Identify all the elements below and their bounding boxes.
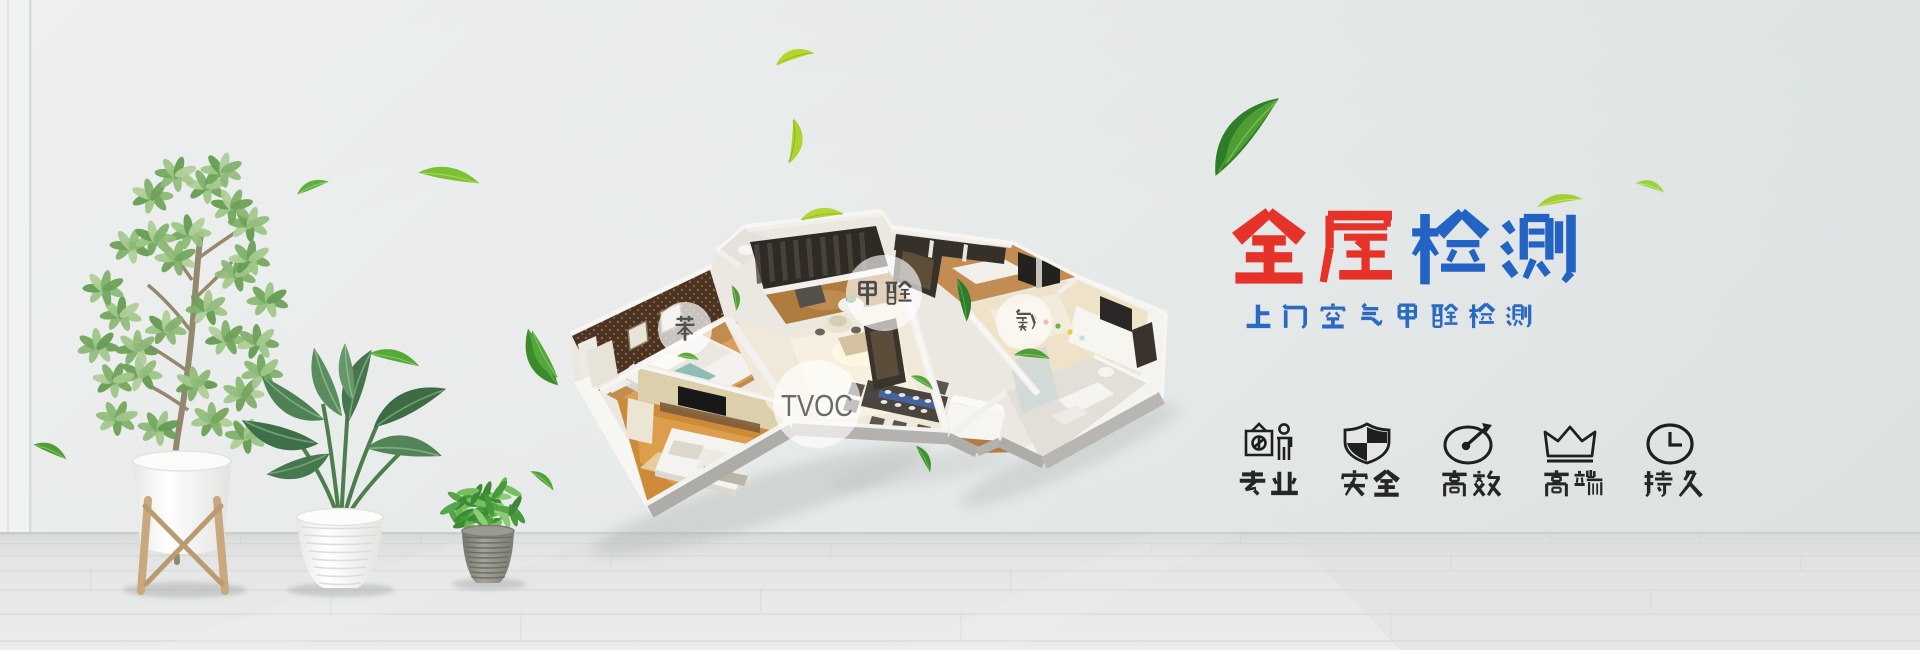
svg-text:TVOC: TVOC [781,388,853,423]
